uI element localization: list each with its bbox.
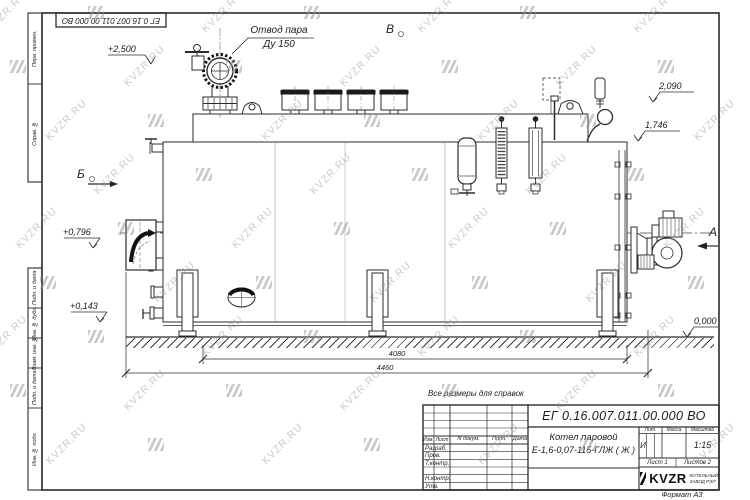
format-label: Формат А3 [645,490,719,499]
col-ndokum: N докум. [450,436,487,444]
massa-label: Масса [662,427,686,434]
product-name-line2: Е-1,6-0,07-115-ГЛЖ ( Ж ) [529,445,638,456]
level-mark-1746: 1,746 [645,121,668,130]
row-nkontr: Н.контр. [425,476,450,482]
lit-value: И [639,433,647,458]
view-label-a: А [709,226,717,238]
level-mark-0143: +0,143 [70,302,98,311]
scale-value: 1:15 [686,433,719,458]
col-izm: Изм. [423,436,434,444]
kvzr-logo-text: KVZR [649,472,686,485]
dimension-4080: 4080 [377,350,417,358]
sheets-total: Листов 2 [676,458,719,467]
kvzr-logo-icon [640,472,646,485]
col-list: Лист [434,436,450,444]
kvzr-logo-subtext-line2: ЗАВОД РЭП [690,479,718,484]
margin-sprav-no: Справ. № [28,84,42,182]
company-logo-block: KVZR КОТЕЛЬНЫЙ ЗАВОД РЭП [640,468,718,489]
row-tkontr: Т.контр. [425,461,449,467]
manhole [228,288,255,307]
reference-note: Все размеры для справок [428,390,524,398]
drawing-sheet: ЕГ 0.16.007.011.00.000 ВО Отвод пара Ду … [0,0,750,500]
top-designation: ЕГ 0.16.007.011.00.000 ВО [58,14,164,26]
row-razrab: Разраб. [425,446,447,452]
margin-inv-podl: Инв. № подл. [28,408,42,490]
margin-vzam-inv: Взам. инв. № [28,338,42,368]
level-mark-2090: 2,090 [659,82,682,91]
margin-perv-primen: Перв. примен. [28,13,42,84]
col-podp: Подп. [487,436,512,444]
view-label-b: Б [77,168,85,180]
steam-outlet-label-line2: Ду 150 [250,40,308,50]
safety-valves [281,86,409,116]
margin-podp-data-2: Подп. и дата [28,368,42,408]
col-data: Дата [512,436,528,444]
steam-outlet-label-line1: Отвод пара [244,26,314,36]
title-designation: ЕГ 0.16.007.011.00.000 ВО [531,406,717,426]
product-name-line1: Котел паровой [529,432,638,443]
kvzr-logo-subtext: КОТЕЛЬНЫЙ ЗАВОД РЭП [690,473,718,484]
row-utv: Утв. [425,484,439,490]
level-mark-0000: 0,000 [694,317,717,326]
level-mark-0796: +0,796 [63,228,91,237]
row-prov: Пров. [425,453,441,459]
steam-valve-assembly [185,28,237,118]
burner-box [126,220,156,270]
margin-inv-dubl: Инв. № дубл. [28,308,42,338]
view-label-v: В [386,23,394,35]
pressure-gauge-siphon [587,78,613,141]
margin-podp-data-1: Подп. и дата [28,268,42,308]
level-mark-2500: +2,500 [108,45,136,54]
dimension-4460: 4460 [365,364,405,372]
sheet-number: Лист 1 [639,458,676,467]
fan-unit [631,211,682,273]
